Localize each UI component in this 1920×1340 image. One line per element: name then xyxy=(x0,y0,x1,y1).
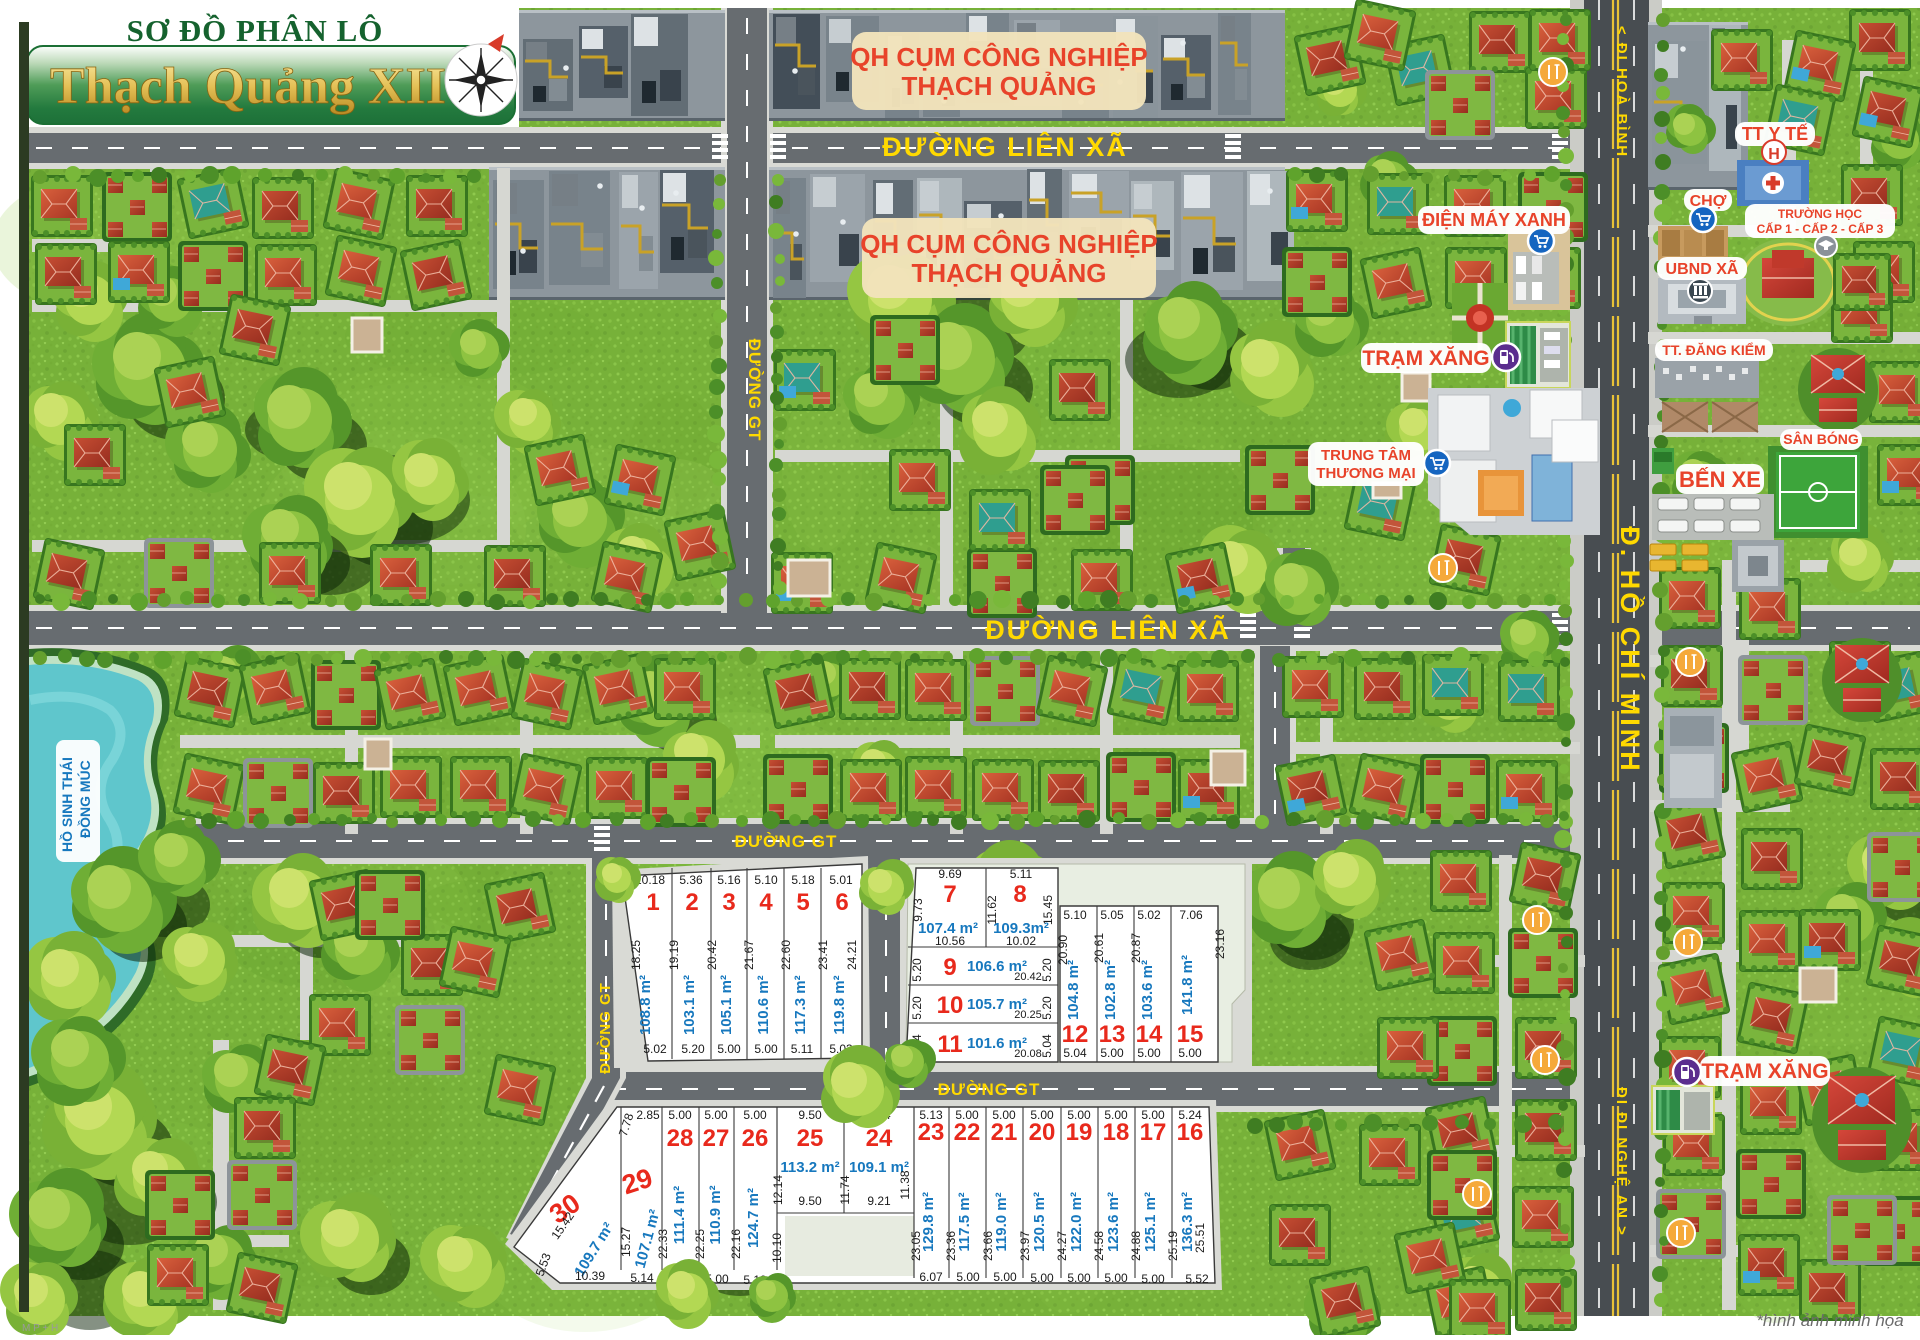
svg-text:122.0 m²: 122.0 m² xyxy=(1068,1192,1085,1252)
svg-text:7.06: 7.06 xyxy=(1179,908,1203,922)
svg-text:111.4 m²: 111.4 m² xyxy=(671,1186,688,1244)
svg-text:23.97: 23.97 xyxy=(1018,1231,1032,1261)
svg-text:5.20: 5.20 xyxy=(1040,958,1054,982)
svg-text:113.2 m²: 113.2 m² xyxy=(780,1159,839,1176)
svg-text:5.11: 5.11 xyxy=(1010,867,1033,881)
svg-text:6: 6 xyxy=(835,889,848,916)
svg-text:21: 21 xyxy=(991,1119,1018,1146)
svg-text:TRẠM XĂNG: TRẠM XĂNG xyxy=(1701,1060,1828,1083)
svg-text:20.42: 20.42 xyxy=(1014,971,1042,983)
svg-text:3: 3 xyxy=(722,889,735,916)
svg-text:25.51: 25.51 xyxy=(1193,1223,1207,1253)
svg-text:10.56: 10.56 xyxy=(935,934,965,948)
svg-text:22: 22 xyxy=(954,1119,981,1146)
svg-text:19: 19 xyxy=(1066,1119,1093,1146)
svg-text:5.04: 5.04 xyxy=(1063,1046,1087,1060)
svg-text:5: 5 xyxy=(796,889,809,916)
svg-text:BẾN XE: BẾN XE xyxy=(1679,467,1761,492)
svg-text:20: 20 xyxy=(1029,1119,1056,1146)
svg-text:6.07: 6.07 xyxy=(919,1270,943,1284)
svg-text:20.08: 20.08 xyxy=(1014,1048,1042,1060)
svg-text:5.00: 5.00 xyxy=(956,1270,980,1284)
svg-text:12.14: 12.14 xyxy=(771,1175,785,1205)
svg-text:103.1 m²: 103.1 m² xyxy=(681,975,698,1035)
svg-text:18.25: 18.25 xyxy=(629,940,643,970)
svg-text:5.14: 5.14 xyxy=(630,1271,654,1285)
svg-text:9.73: 9.73 xyxy=(911,898,925,922)
svg-text:5.20: 5.20 xyxy=(1040,996,1054,1020)
svg-text:5.10: 5.10 xyxy=(754,873,778,887)
svg-text:11.38: 11.38 xyxy=(898,1170,912,1199)
svg-text:5.00: 5.00 xyxy=(668,1108,692,1122)
svg-text:117.3 m²: 117.3 m² xyxy=(792,975,809,1034)
svg-text:ĐƯỜNG GT: ĐƯỜNG GT xyxy=(596,982,614,1074)
svg-text:120.5 m²: 120.5 m² xyxy=(1031,1192,1048,1252)
svg-text:26: 26 xyxy=(742,1125,769,1152)
svg-text:25: 25 xyxy=(797,1125,824,1152)
svg-text:102.8 m²: 102.8 m² xyxy=(1102,960,1119,1020)
svg-text:QH CỤM CÔNG NGHIỆP: QH CỤM CÔNG NGHIỆP xyxy=(860,229,1158,259)
svg-text:5.11: 5.11 xyxy=(791,1042,814,1056)
svg-text:19.19: 19.19 xyxy=(667,940,681,970)
svg-text:9.50: 9.50 xyxy=(798,1108,822,1122)
svg-text:TT. ĐĂNG KIỂM: TT. ĐĂNG KIỂM xyxy=(1662,341,1765,358)
svg-text:28: 28 xyxy=(667,1125,694,1152)
svg-text:5.00: 5.00 xyxy=(704,1108,728,1122)
svg-text:20.42: 20.42 xyxy=(705,940,719,970)
svg-text:119.8 m²: 119.8 m² xyxy=(831,975,848,1034)
svg-text:23.41: 23.41 xyxy=(816,940,830,970)
svg-text:20.87: 20.87 xyxy=(1129,933,1143,963)
svg-text:5.02: 5.02 xyxy=(1137,908,1161,922)
svg-text:5.00: 5.00 xyxy=(717,1042,741,1056)
svg-text:ĐIỆN MÁY XANH: ĐIỆN MÁY XANH xyxy=(1422,209,1566,230)
svg-text:119.0 m²: 119.0 m² xyxy=(993,1192,1010,1251)
svg-text:23.16: 23.16 xyxy=(1213,929,1227,959)
svg-text:5.00: 5.00 xyxy=(1104,1271,1128,1285)
svg-text:THẠCH QUẢNG: THẠCH QUẢNG xyxy=(912,258,1107,288)
svg-text:SƠ ĐỒ PHÂN LÔ: SƠ ĐỒ PHÂN LÔ xyxy=(127,12,384,48)
svg-text:5.36: 5.36 xyxy=(679,873,703,887)
svg-text:22.25: 22.25 xyxy=(693,1229,707,1259)
svg-text:5.20: 5.20 xyxy=(681,1042,705,1056)
svg-text:24: 24 xyxy=(866,1125,893,1152)
svg-text:141.8 m²: 141.8 m² xyxy=(1179,955,1196,1015)
svg-text:9: 9 xyxy=(943,954,956,981)
svg-text:5.02: 5.02 xyxy=(643,1042,667,1056)
svg-text:124.7 m²: 124.7 m² xyxy=(745,1188,762,1248)
svg-text:UBND XÃ: UBND XÃ xyxy=(1666,258,1739,278)
svg-text:10.02: 10.02 xyxy=(1006,934,1036,948)
svg-text:10.10: 10.10 xyxy=(770,1233,784,1263)
svg-text:SÂN BÓNG: SÂN BÓNG xyxy=(1783,430,1859,447)
svg-text:9.21: 9.21 xyxy=(867,1194,891,1208)
svg-text:ĐI ĐI NGHỆ AN >: ĐI ĐI NGHỆ AN > xyxy=(1613,1087,1631,1237)
svg-text:TRẠM XĂNG: TRẠM XĂNG xyxy=(1362,347,1489,370)
svg-text:5.00: 5.00 xyxy=(993,1270,1017,1284)
svg-text:< ĐI HOÀ BÌNH: < ĐI HOÀ BÌNH xyxy=(1613,26,1630,158)
svg-text:25.19: 25.19 xyxy=(1166,1231,1180,1261)
svg-text:QH CỤM CÔNG NGHIỆP: QH CỤM CÔNG NGHIỆP xyxy=(850,42,1148,72)
svg-text:23.36: 23.36 xyxy=(944,1231,958,1261)
svg-text:*hình ảnh minh họa: *hình ảnh minh họa xyxy=(1756,1311,1903,1330)
svg-text:5.52: 5.52 xyxy=(1185,1272,1209,1286)
svg-text:123.6 m²: 123.6 m² xyxy=(1105,1192,1122,1252)
svg-text:HỒ SINH THÁI: HỒ SINH THÁI xyxy=(58,757,75,852)
svg-text:ĐƯỜNG GT: ĐƯỜNG GT xyxy=(938,1080,1041,1099)
svg-text:TRƯỜNG HỌC: TRƯỜNG HỌC xyxy=(1778,206,1863,221)
svg-text:18: 18 xyxy=(1103,1119,1130,1146)
svg-text:103.6 m²: 103.6 m² xyxy=(1139,960,1156,1020)
svg-text:11: 11 xyxy=(937,1031,962,1058)
svg-text:THƯƠNG MẠI: THƯƠNG MẠI xyxy=(1316,465,1415,482)
svg-text:13: 13 xyxy=(1099,1021,1126,1048)
svg-text:CẤP 1 - CẤP 2 - CẤP 3: CẤP 1 - CẤP 2 - CẤP 3 xyxy=(1757,221,1884,236)
svg-text:5.18: 5.18 xyxy=(791,873,815,887)
svg-text:24.27: 24.27 xyxy=(1055,1231,1069,1261)
svg-text:20.61: 20.61 xyxy=(1092,933,1106,963)
svg-text:23: 23 xyxy=(918,1119,945,1146)
svg-text:117.5 m²: 117.5 m² xyxy=(956,1192,973,1251)
svg-text:5.10: 5.10 xyxy=(1063,908,1087,922)
svg-text:5.20: 5.20 xyxy=(910,996,924,1020)
svg-text:125.1 m²: 125.1 m² xyxy=(1142,1192,1159,1252)
svg-text:21.67: 21.67 xyxy=(742,940,756,970)
svg-text:110.6 m²: 110.6 m² xyxy=(755,975,772,1034)
svg-text:104.8 m²: 104.8 m² xyxy=(1065,960,1082,1020)
svg-text:5.00: 5.00 xyxy=(1067,1271,1091,1285)
svg-text:20.25: 20.25 xyxy=(1014,1009,1042,1021)
svg-text:1: 1 xyxy=(646,889,659,916)
svg-text:ĐƯỜNG GT: ĐƯỜNG GT xyxy=(735,832,838,851)
svg-text:4: 4 xyxy=(759,889,773,916)
svg-text:24.58: 24.58 xyxy=(1092,1231,1106,1261)
svg-text:14: 14 xyxy=(1136,1021,1163,1048)
svg-text:5.01: 5.01 xyxy=(829,873,853,887)
svg-text:5.00: 5.00 xyxy=(743,1108,767,1122)
svg-text:TRUNG TÂM: TRUNG TÂM xyxy=(1321,446,1411,464)
svg-text:8: 8 xyxy=(1013,881,1026,908)
svg-text:5.00: 5.00 xyxy=(1141,1272,1165,1286)
svg-text:105.1 m²: 105.1 m² xyxy=(718,975,735,1035)
svg-text:ĐỒNG MÚC: ĐỒNG MÚC xyxy=(76,760,93,838)
svg-text:27: 27 xyxy=(703,1125,730,1152)
svg-text:5.00: 5.00 xyxy=(1100,1046,1124,1060)
svg-text:5.05: 5.05 xyxy=(1100,908,1124,922)
svg-text:23.05: 23.05 xyxy=(909,1231,923,1261)
svg-text:108.8 m²: 108.8 m² xyxy=(637,975,654,1035)
svg-text:9.50: 9.50 xyxy=(798,1194,822,1208)
svg-text:5.00: 5.00 xyxy=(1178,1046,1202,1060)
svg-text:22.16: 22.16 xyxy=(729,1229,743,1259)
svg-text:7: 7 xyxy=(943,881,956,908)
svg-text:ĐƯỜNG LIÊN XÃ: ĐƯỜNG LIÊN XÃ xyxy=(985,614,1230,645)
svg-text:2: 2 xyxy=(685,889,698,916)
svg-text:23.66: 23.66 xyxy=(981,1231,995,1261)
svg-text:M P + H: M P + H xyxy=(22,1323,58,1334)
svg-text:5.00: 5.00 xyxy=(754,1042,778,1056)
svg-text:15: 15 xyxy=(1177,1021,1204,1048)
svg-text:2.85: 2.85 xyxy=(636,1108,660,1122)
svg-text:5.00: 5.00 xyxy=(1137,1046,1161,1060)
svg-text:10.39: 10.39 xyxy=(575,1269,605,1283)
svg-text:15.27: 15.27 xyxy=(619,1227,633,1257)
svg-text:16: 16 xyxy=(1177,1119,1204,1146)
svg-text:H: H xyxy=(1768,146,1780,163)
svg-text:5.04: 5.04 xyxy=(1040,1034,1054,1058)
svg-text:ĐƯỜNG LIÊN XÃ: ĐƯỜNG LIÊN XÃ xyxy=(882,131,1127,162)
svg-text:5.16: 5.16 xyxy=(717,873,741,887)
svg-text:24.88: 24.88 xyxy=(1129,1231,1143,1261)
svg-text:9.69: 9.69 xyxy=(938,867,962,881)
svg-text:22.33: 22.33 xyxy=(656,1229,670,1259)
svg-text:110.9 m²: 110.9 m² xyxy=(707,1185,724,1244)
svg-text:17: 17 xyxy=(1140,1119,1167,1146)
svg-text:5.20: 5.20 xyxy=(910,958,924,982)
svg-text:10: 10 xyxy=(937,992,964,1019)
svg-text:THẠCH QUẢNG: THẠCH QUẢNG xyxy=(902,71,1097,101)
svg-text:22.60: 22.60 xyxy=(779,940,793,970)
svg-text:ĐƯỜNG GT: ĐƯỜNG GT xyxy=(745,339,764,442)
svg-text:24.21: 24.21 xyxy=(845,940,859,970)
svg-text:12: 12 xyxy=(1062,1021,1089,1048)
svg-text:11.74: 11.74 xyxy=(838,1175,852,1204)
svg-text:Đ. HỒ CHÍ MINH: Đ. HỒ CHÍ MINH xyxy=(1615,526,1646,774)
svg-text:Thạch Quảng XII: Thạch Quảng XII xyxy=(50,58,446,115)
svg-text:5.00: 5.00 xyxy=(1030,1271,1054,1285)
